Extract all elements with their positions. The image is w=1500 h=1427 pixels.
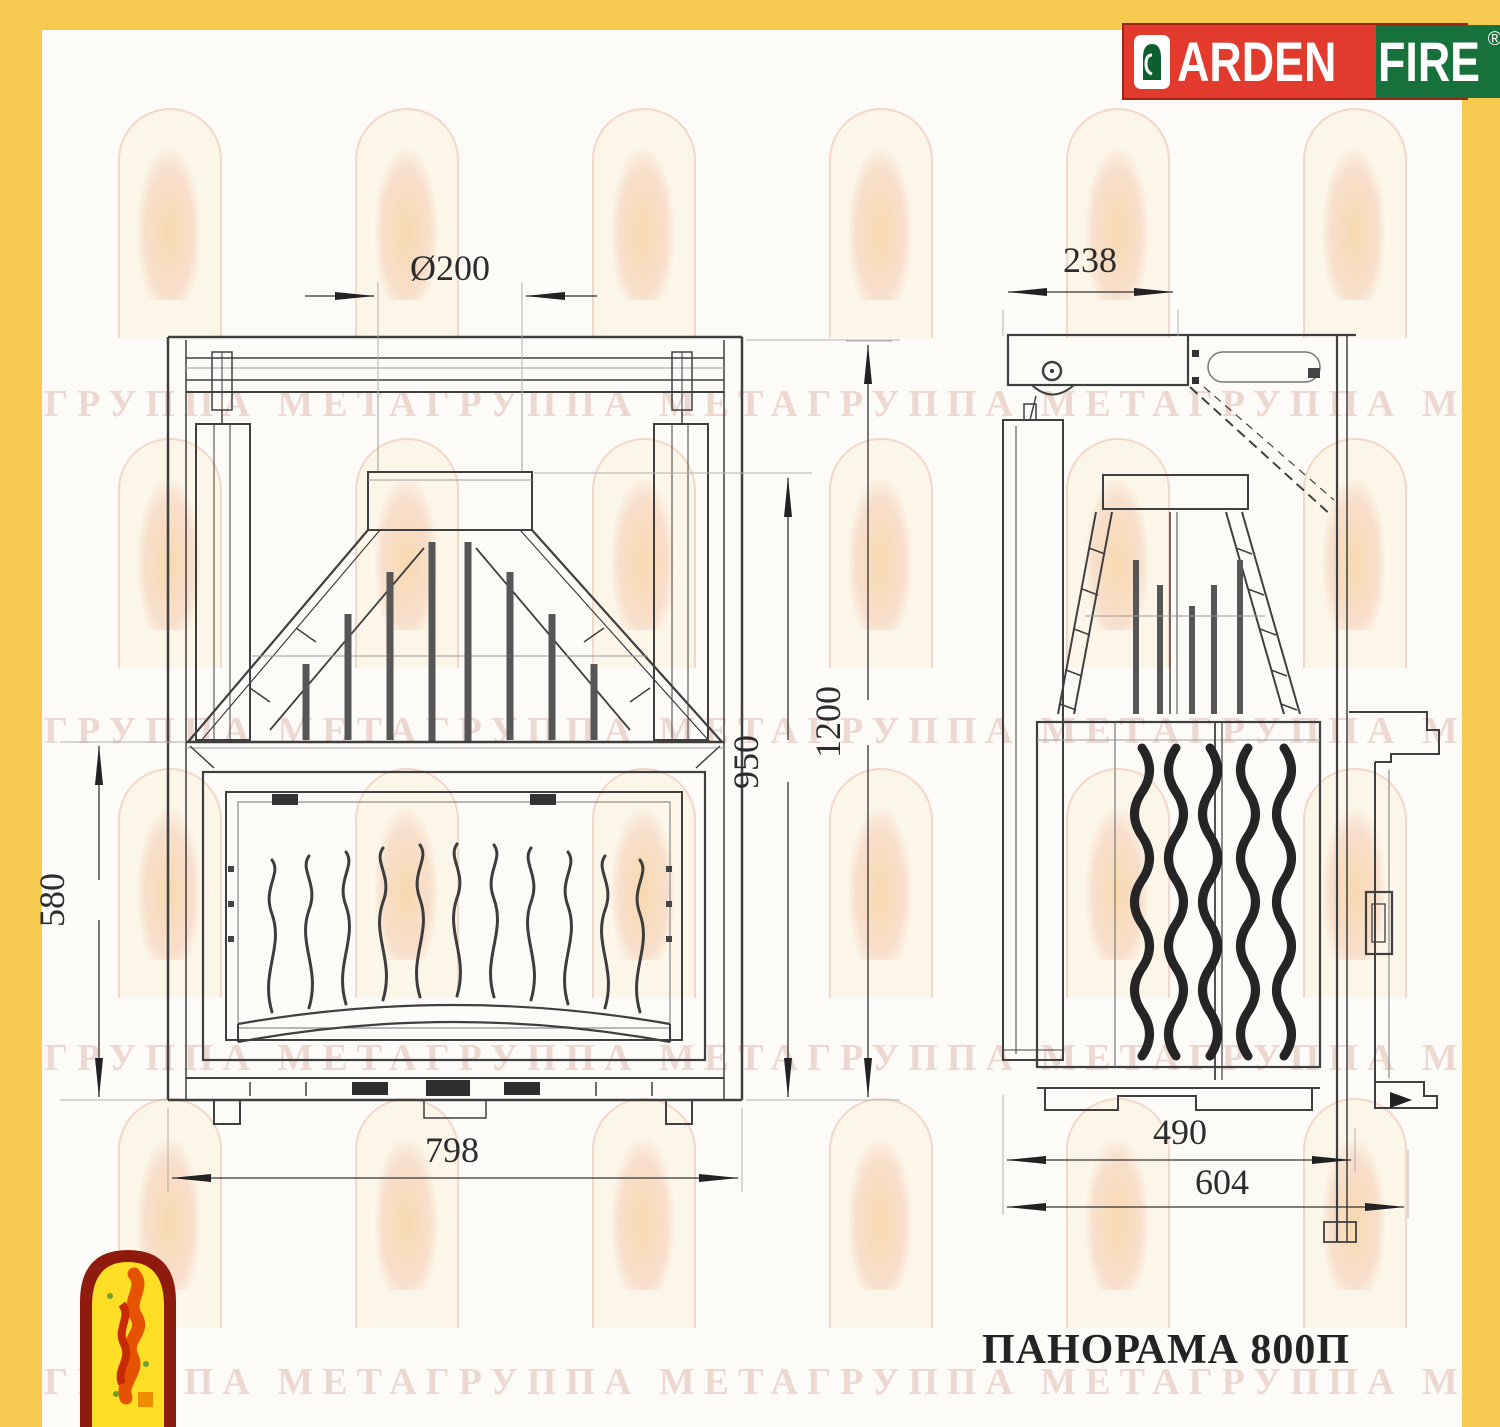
- registered-mark: ®: [1488, 29, 1500, 51]
- page: ГРУППА МЕТАГРУППА МЕТАГРУППА МЕТАГРУППА …: [0, 0, 1500, 1427]
- front-view-drawing: [168, 337, 742, 1124]
- dim-top-depth: 238: [1063, 240, 1117, 280]
- dim-hood-height: 950: [726, 735, 766, 789]
- dim-total-height: 1200: [808, 686, 848, 758]
- brand-logo: ARDEN FIRE ®: [1122, 23, 1468, 100]
- brand-logo-left: ARDEN: [1124, 25, 1376, 98]
- dim-firebox-height: 580: [32, 873, 72, 927]
- meta-arch-logo: [76, 1244, 180, 1427]
- dim-total-depth: 604: [1195, 1162, 1249, 1202]
- dim-flue-diameter: Ø200: [410, 248, 490, 288]
- brand-name-arden: ARDEN: [1177, 34, 1336, 90]
- dim-width: 798: [425, 1130, 479, 1170]
- dim-body-depth: 490: [1153, 1112, 1207, 1152]
- brand-logo-right: FIRE ®: [1376, 25, 1500, 98]
- side-view-drawing: [1003, 335, 1439, 1242]
- technical-drawing: Ø200 238 1200 950 580 798 490 604: [0, 0, 1500, 1427]
- brand-name-fire: FIRE: [1378, 34, 1480, 90]
- model-title: ПАНОРАМА 800П: [982, 1326, 1350, 1374]
- brand-arch-icon: [1133, 34, 1171, 90]
